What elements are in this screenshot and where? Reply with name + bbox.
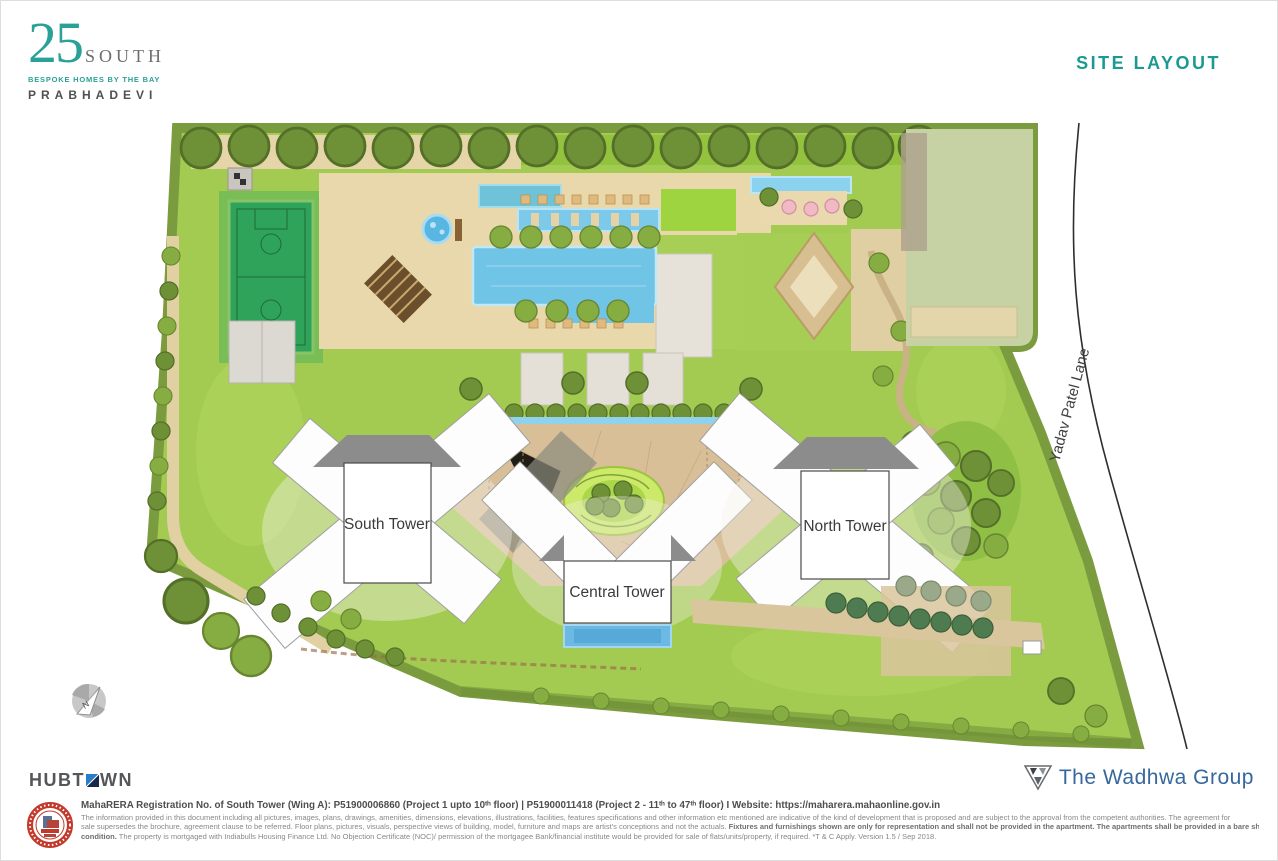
site-plan-illustration: South Tower Central Tower North Tower [1,1,1278,861]
compass-icon: N [72,684,106,718]
hubtown-square-icon [86,774,99,787]
disclaimer-line-3: condition. The property is mortgaged wit… [81,832,1259,841]
north-tower-label: North Tower [803,518,886,535]
road-label: Yadav Patel Lane [1046,346,1093,464]
wadhwa-triangle-icon [1023,764,1053,791]
central-tower-label: Central Tower [569,584,664,601]
hubtown-text-left: HUBT [29,770,85,791]
rera-registration-line: MahaRERA Registration No. of South Tower… [81,800,1259,811]
disclaimer-line-2: sale supersedes the brochure, agreement … [81,822,1259,831]
maharera-stamp-icon [27,802,73,853]
utility-block [901,129,1033,346]
legal-disclaimer: MahaRERA Registration No. of South Tower… [81,800,1259,841]
south-tower-label: South Tower [344,516,430,533]
hubtown-text-right: WN [100,770,133,791]
disclaimer-line-1: The information provided in this documen… [81,813,1259,822]
wadhwa-group-logo: The Wadhwa Group [1023,764,1254,791]
wadhwa-text: The Wadhwa Group [1059,766,1254,790]
brochure-page: 25 SOUTH BESPOKE HOMES BY THE BAY PRABHA… [0,0,1278,861]
hubtown-logo: HUBTWN [29,770,133,791]
